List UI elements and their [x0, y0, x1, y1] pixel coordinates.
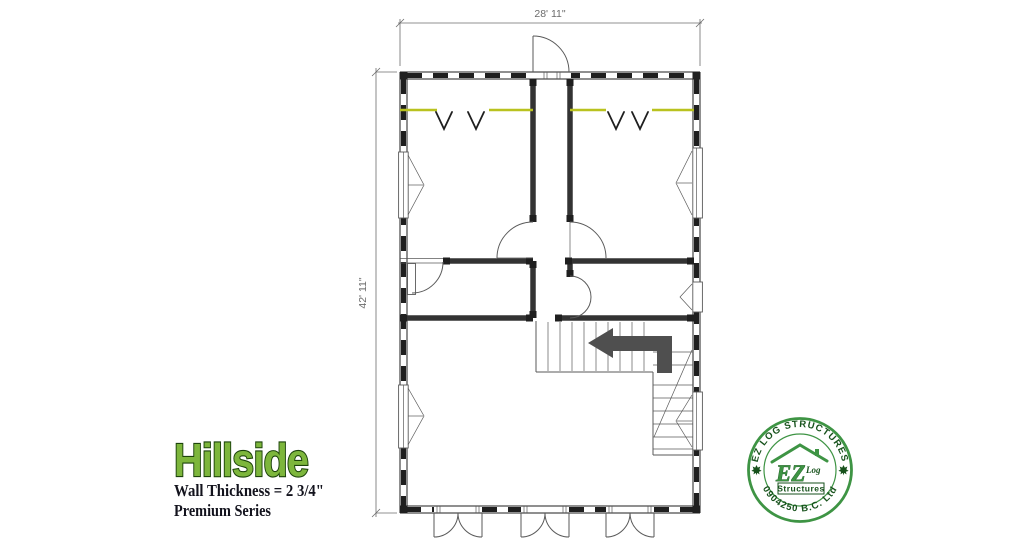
hanger-icon — [632, 112, 648, 129]
company-stamp: EZ LOG STRUCTURES 0904250 B.C. Ltd EZ Lo… — [749, 419, 852, 522]
window-left-lower — [399, 385, 424, 448]
series-note: Premium Series — [174, 501, 271, 520]
stamp-monogram: EZ — [775, 461, 805, 486]
outer-wall-bottom — [400, 506, 700, 513]
staircase — [536, 321, 693, 455]
closet-rod — [400, 110, 452, 129]
model-name: Hillside — [174, 434, 308, 486]
stair-direction-arrow-icon — [588, 328, 672, 373]
window-right-lower — [676, 392, 702, 450]
width-dimension-label: 28' 11" — [534, 8, 566, 20]
patio-double-door-1 — [434, 506, 482, 537]
window-left-upper — [399, 152, 424, 218]
closet-rod — [570, 110, 624, 129]
patio-double-door-3 — [606, 506, 654, 537]
floor-plan-sheet: 28' 11" 42' 11" — [0, 0, 1024, 554]
patio-double-door-2 — [521, 506, 569, 537]
closet-rod — [468, 110, 533, 129]
hall-door-right — [570, 222, 606, 258]
floor-plan-drawing: 28' 11" 42' 11" — [0, 0, 1024, 554]
hanger-icon — [468, 112, 484, 129]
closet-rods — [400, 110, 694, 129]
room-door-lower-right — [570, 276, 591, 318]
dimension-left: 42' 11" — [357, 68, 397, 517]
closet-rod — [632, 110, 694, 129]
hall-door-left — [497, 222, 533, 258]
hanger-icon — [436, 112, 452, 129]
height-dimension-label: 42' 11" — [357, 277, 369, 309]
hanger-icon — [608, 112, 624, 129]
wall-corner-blocks — [400, 72, 700, 513]
window-right-upper — [676, 148, 702, 218]
entry-door — [533, 36, 570, 79]
window-right-middle — [680, 282, 702, 312]
dimension-top: 28' 11" — [396, 8, 704, 66]
wall-thickness-note: Wall Thickness = 2 3/4" — [174, 481, 324, 500]
title-block: Hillside Wall Thickness = 2 3/4" Premium… — [174, 434, 324, 520]
room-door-mid-left — [400, 259, 443, 295]
stamp-structures-label: Structures — [777, 484, 825, 494]
stamp-monogram-sub: Log — [805, 465, 821, 475]
